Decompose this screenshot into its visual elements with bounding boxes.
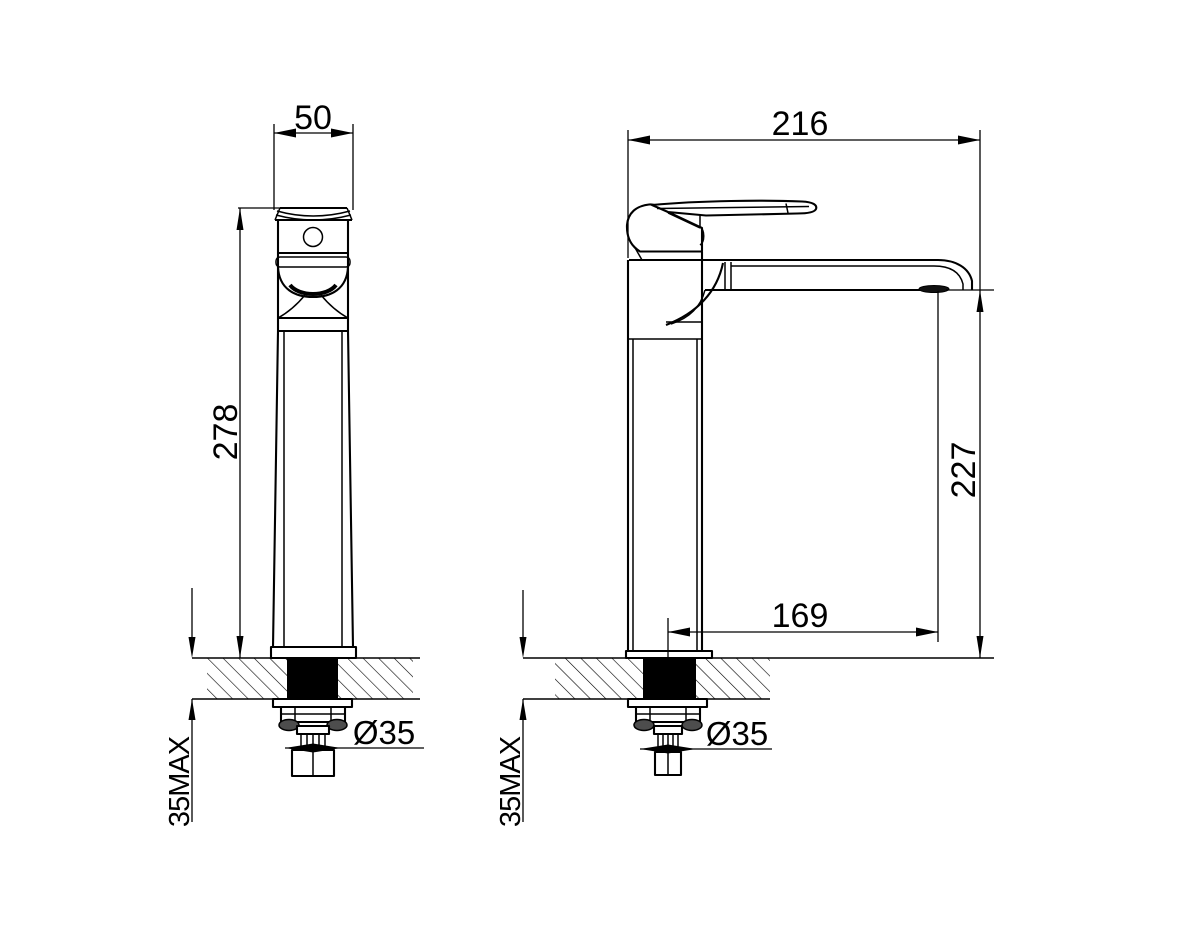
side-countertop <box>523 658 994 699</box>
side-dim-overall-depth: 216 <box>628 105 980 658</box>
front-dim-handle-width: 50 <box>274 99 353 210</box>
drawing-canvas: 50 278 35MAX Ø35 <box>0 0 1190 950</box>
side-aerator <box>919 286 949 293</box>
side-dim-spout-height: 227 <box>945 290 994 658</box>
side-faucet-outline <box>626 201 972 658</box>
side-dim-227-label: 227 <box>945 442 983 499</box>
side-dim-169-label: 169 <box>772 597 829 635</box>
front-mounting-hole <box>287 658 338 699</box>
front-faucet-outline <box>271 208 356 658</box>
drawing-page: 50 278 35MAX Ø35 <box>0 0 1190 950</box>
side-view: 216 227 169 35MAX <box>495 105 994 827</box>
front-dim-278-label: 278 <box>207 404 245 461</box>
side-mounting-hardware <box>628 699 707 775</box>
front-dim-50-label: 50 <box>294 99 332 137</box>
side-mounting-hole <box>643 658 696 699</box>
front-dim-deck-thickness: 35MAX <box>164 588 196 827</box>
front-dim-height: 278 <box>207 208 281 658</box>
front-dim-35max-label: 35MAX <box>164 736 196 827</box>
side-dim-216-label: 216 <box>772 105 829 143</box>
front-mounting-hardware <box>273 699 352 776</box>
front-dim-dia35-label: Ø35 <box>353 714 415 751</box>
side-fixing-lug-left <box>634 720 654 731</box>
front-base-plate <box>271 647 356 658</box>
side-dim-35max-label: 35MAX <box>495 736 527 827</box>
side-dim-spout-reach: 169 <box>668 291 938 658</box>
side-dim-dia35-label: Ø35 <box>706 715 768 752</box>
front-view: 50 278 35MAX Ø35 <box>164 99 424 827</box>
side-base-plate <box>626 651 712 658</box>
front-handle-indicator-dot <box>304 228 323 247</box>
side-dim-deck-thickness: 35MAX <box>495 590 527 827</box>
front-countertop <box>192 658 420 699</box>
side-fixing-lug-right <box>682 720 702 731</box>
